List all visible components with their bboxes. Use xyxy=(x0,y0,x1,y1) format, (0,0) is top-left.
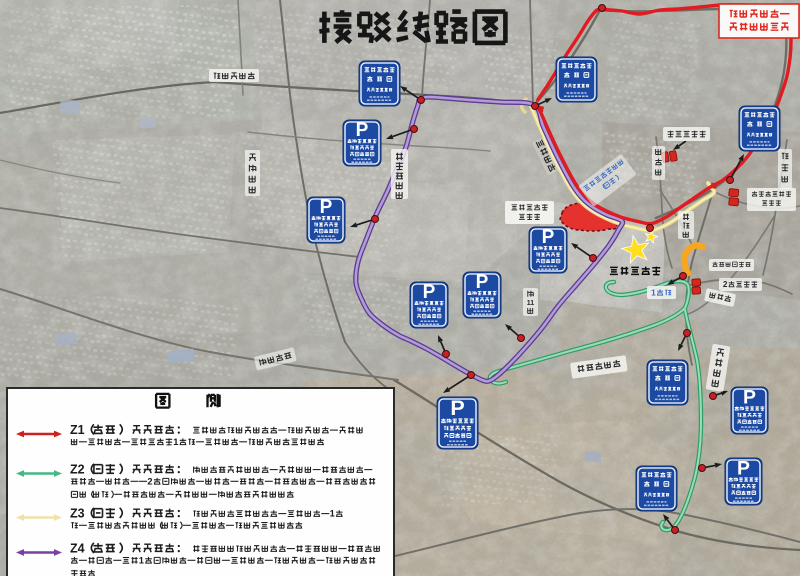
svg-text:P: P xyxy=(743,386,756,408)
svg-text:1: 1 xyxy=(330,509,335,519)
svg-text:2: 2 xyxy=(147,476,152,486)
svg-text:1: 1 xyxy=(173,437,178,447)
svg-text:2: 2 xyxy=(723,280,728,289)
svg-text:3: 3 xyxy=(78,506,85,520)
svg-text:P: P xyxy=(542,227,555,248)
svg-text:P: P xyxy=(423,282,436,303)
svg-text:1: 1 xyxy=(139,555,144,565)
svg-text:P: P xyxy=(476,272,489,293)
svg-text:1: 1 xyxy=(651,287,656,297)
svg-text:1: 1 xyxy=(78,423,85,437)
svg-text:2: 2 xyxy=(78,462,85,476)
svg-text:P: P xyxy=(356,120,369,141)
svg-text:P: P xyxy=(320,197,333,218)
svg-text:P: P xyxy=(737,457,750,479)
svg-text:11: 11 xyxy=(527,300,535,307)
svg-text:4: 4 xyxy=(78,541,85,555)
svg-text:P: P xyxy=(450,396,464,420)
